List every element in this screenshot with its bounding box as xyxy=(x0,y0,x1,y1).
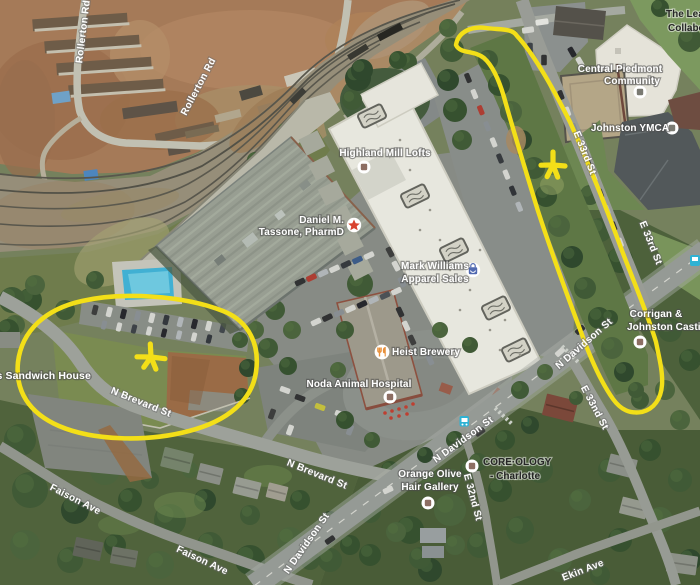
svg-text:- Charlotte: - Charlotte xyxy=(490,471,540,482)
svg-text:Heist Brewery: Heist Brewery xyxy=(392,347,460,358)
svg-text:CORE·OLOGY: CORE·OLOGY xyxy=(483,457,552,468)
svg-text:Central Piedmont: Central Piedmont xyxy=(578,64,663,75)
svg-text:Noda Animal Hospital: Noda Animal Hospital xyxy=(307,379,412,390)
svg-text:Hair Gallery: Hair Gallery xyxy=(401,482,459,493)
svg-text:Johnston Castin: Johnston Castin xyxy=(627,322,700,333)
svg-text:Orange Olive: Orange Olive xyxy=(398,469,462,480)
svg-text:Highland Mill Lofts: Highland Mill Lofts xyxy=(339,148,431,159)
svg-text:Tassone, PharmD: Tassone, PharmD xyxy=(259,227,344,238)
svg-text:Collabor.: Collabor. xyxy=(668,23,700,34)
svg-text:Community: Community xyxy=(604,76,660,87)
svg-text:k's Sandwich House: k's Sandwich House xyxy=(0,370,91,382)
svg-text:The Lear: The Lear xyxy=(666,9,700,20)
svg-text:Apparel Sales: Apparel Sales xyxy=(401,274,469,285)
svg-text:Mark Williams: Mark Williams xyxy=(401,261,469,272)
svg-text:Johnston YMCA: Johnston YMCA xyxy=(591,123,669,134)
svg-text:Corrigan &: Corrigan & xyxy=(630,309,683,320)
svg-text:Daniel M.: Daniel M. xyxy=(299,215,344,226)
